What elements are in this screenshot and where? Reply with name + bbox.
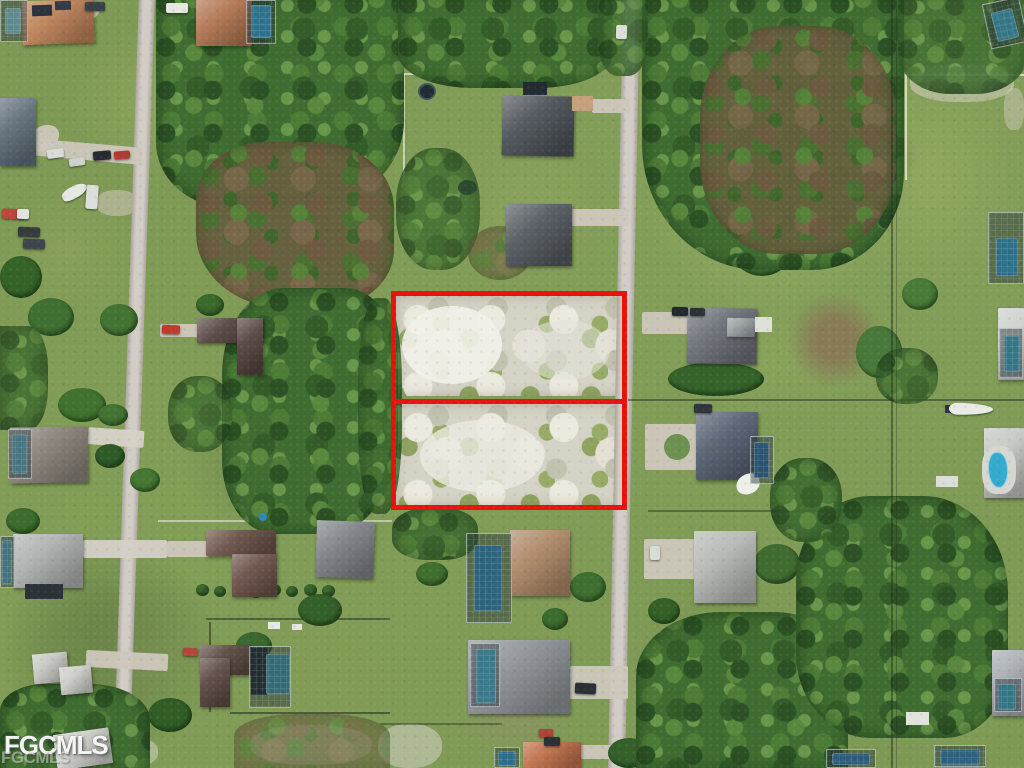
tree-cluster	[0, 326, 48, 430]
pool-cage	[8, 429, 32, 479]
shed	[572, 96, 593, 111]
vehicle	[183, 648, 198, 657]
lot-outline-south	[391, 399, 627, 510]
vehicle	[17, 209, 29, 219]
bush	[298, 594, 342, 626]
house-roof	[196, 0, 252, 46]
bush	[98, 404, 128, 426]
pool-cage	[999, 328, 1023, 378]
tree-cluster	[398, 0, 613, 88]
tree-cluster	[168, 376, 232, 452]
driveway	[570, 209, 628, 226]
pool-cage	[466, 533, 512, 623]
bush	[214, 586, 226, 597]
vehicle	[544, 737, 560, 746]
driveway-island	[664, 434, 690, 460]
boat	[949, 403, 993, 416]
pool-cage	[934, 745, 986, 767]
bush	[286, 586, 298, 597]
house-roof	[727, 318, 755, 337]
house-roof	[315, 520, 375, 579]
vehicle	[616, 25, 627, 39]
solar-panel	[25, 584, 63, 599]
bush	[668, 362, 764, 396]
vehicle	[93, 150, 112, 161]
house-roof	[206, 530, 276, 556]
vehicle	[85, 185, 99, 210]
house-roof	[506, 204, 572, 266]
pool-cage	[246, 0, 276, 44]
bush	[196, 584, 209, 596]
bush	[902, 278, 938, 310]
bush	[542, 608, 568, 630]
watermark-fgcmls-small: FGCMLS	[1, 748, 70, 768]
house-roof	[237, 318, 263, 375]
bush	[6, 508, 40, 534]
vehicle	[18, 227, 40, 238]
house-roof	[510, 530, 570, 596]
bush	[570, 572, 606, 602]
shed	[906, 712, 929, 725]
vehicle	[650, 546, 660, 560]
driveway	[167, 541, 209, 557]
house-roof	[694, 531, 756, 603]
driveway	[592, 99, 630, 113]
pool-cage	[988, 212, 1024, 284]
house-roof	[200, 658, 230, 707]
tree-cluster	[234, 714, 390, 768]
fence-line	[206, 618, 390, 620]
bush	[196, 294, 224, 316]
sand-patch	[1004, 88, 1024, 130]
power-line	[891, 0, 893, 768]
shed	[936, 476, 958, 487]
vehicle	[166, 3, 188, 13]
pool-cage	[470, 643, 500, 707]
vehicle	[672, 307, 688, 316]
vehicle	[690, 308, 705, 316]
house-roof	[232, 554, 277, 597]
bush	[648, 598, 680, 624]
house-roof	[59, 665, 93, 696]
house-roof	[13, 534, 83, 588]
yard-item	[292, 624, 302, 630]
driveway	[83, 540, 167, 558]
vehicle	[114, 150, 131, 159]
vehicle	[575, 682, 597, 694]
tree-cluster	[876, 348, 938, 404]
shed	[755, 317, 772, 332]
yard-item	[268, 622, 280, 629]
tree-cluster	[700, 26, 896, 254]
bush	[95, 444, 125, 468]
bush	[416, 562, 448, 586]
vehicle	[162, 325, 180, 335]
bush	[754, 544, 800, 584]
fence-line	[628, 399, 1024, 401]
pool-cage	[0, 0, 28, 42]
aerial-scene	[0, 0, 1024, 768]
vehicle	[694, 404, 712, 413]
vehicle	[23, 239, 45, 250]
tree-cluster	[770, 458, 842, 542]
vehicle	[85, 2, 105, 11]
lot-outline-north	[391, 291, 627, 404]
pool-cage	[750, 436, 774, 484]
vehicle	[539, 729, 553, 737]
pond	[458, 180, 477, 195]
solar-panel	[523, 82, 547, 95]
bush	[130, 468, 160, 492]
pool-cage	[494, 747, 520, 768]
pool-cage	[826, 749, 876, 768]
house-roof	[0, 98, 36, 166]
pool	[988, 452, 1008, 488]
house-roof	[696, 412, 758, 480]
fence-line	[905, 74, 907, 180]
house-roof	[501, 95, 574, 156]
power-line	[896, 0, 897, 768]
solar-panel	[55, 1, 71, 11]
blue-object	[259, 513, 267, 521]
bush	[0, 256, 42, 298]
bush	[100, 304, 138, 336]
aerial-photo: FGCMLS FGCMLS	[0, 0, 1024, 768]
tree-cluster	[196, 142, 394, 308]
trampoline	[418, 83, 436, 100]
pool-cage	[0, 536, 15, 588]
pool-cage	[249, 646, 291, 708]
bush	[148, 698, 192, 732]
solar-panel	[32, 5, 52, 17]
fence-line	[380, 723, 502, 725]
pool-cage	[994, 678, 1022, 712]
